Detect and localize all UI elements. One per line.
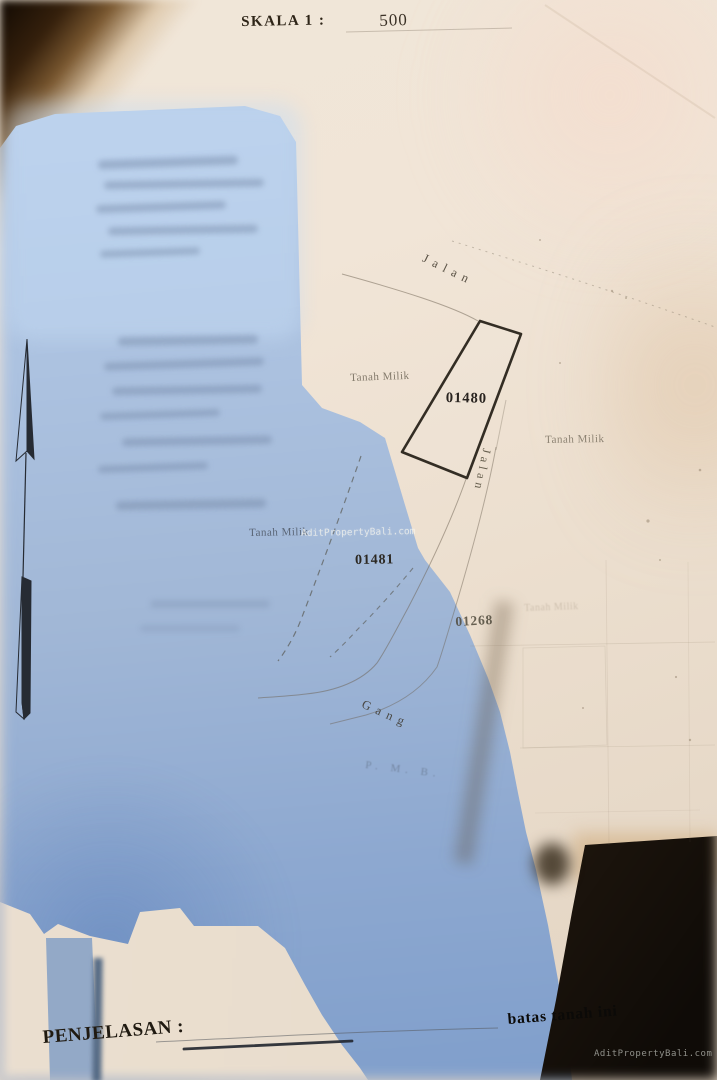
paper-crease (545, 5, 715, 118)
faint-grid-lines (470, 560, 715, 845)
plot-01481-dashed-boundary-lower (330, 568, 413, 657)
paper-specks (539, 239, 701, 741)
watermark-corner: AditPropertyBali.com (594, 1050, 712, 1059)
plot-01481-dashed-boundary-left (278, 456, 361, 661)
plot-id-01480: 01480 (446, 391, 487, 406)
watermark-center: AditPropertyBali.com (301, 527, 416, 538)
photographed-survey-document: SKALA 1 : 500 Jalan Jalan Gang Tanah Mil… (0, 0, 717, 1080)
owner-label-ghost: Tanah Milik (524, 602, 579, 614)
road-side-left-edge (258, 479, 466, 698)
owner-label-1: Tanah Milik (350, 371, 410, 384)
survey-map-linework (0, 0, 717, 1080)
road-top-upper-edge (452, 241, 715, 327)
plot-id-01268: 01268 (455, 613, 493, 628)
plot-id-01481: 01481 (355, 553, 394, 568)
north-arrow (16, 339, 34, 719)
owner-label-2: Tanah Milik (545, 434, 605, 446)
scale-label: SKALA 1 : (241, 14, 326, 30)
legend-thin-line (156, 1028, 498, 1042)
scale-value: 500 (379, 11, 408, 29)
scale-underline (346, 28, 512, 32)
legend-boundary-sample-line (184, 1041, 352, 1049)
road-side-right-edge-upper (496, 400, 506, 450)
owner-label-3: Tanah Milik (249, 527, 309, 539)
